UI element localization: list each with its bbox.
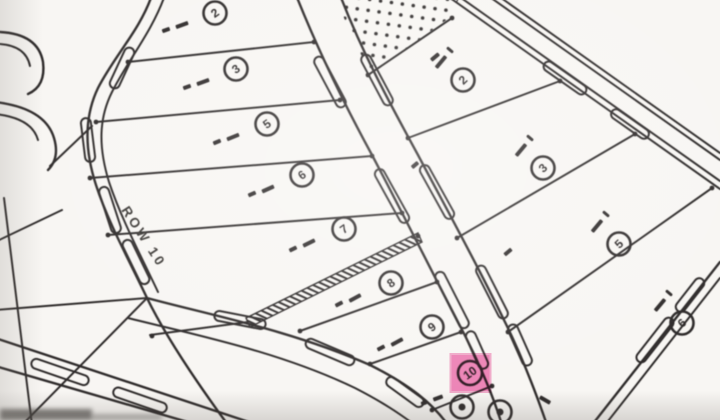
hatched-easement [246,233,422,327]
svg-text:6: 6 [675,315,690,330]
svg-text:2: 2 [208,5,222,20]
svg-text:3: 3 [229,61,243,76]
lot-marker-6[interactable]: 6 [291,164,314,187]
lot-marker-7[interactable]: 7 [333,218,356,241]
highlighted-lot-10[interactable] [451,354,491,392]
south-frontage-road [128,298,448,420]
svg-text:5: 5 [260,116,274,131]
lot-marker-2[interactable]: 2 [452,69,475,92]
lot-marker-3[interactable]: 3 [225,58,248,81]
road-junction-lines [0,126,147,420]
lot-marker-5[interactable]: 5 [608,233,631,256]
svg-text:2: 2 [456,72,471,87]
road-row-label: ROW 10 [118,203,169,270]
svg-text:9: 9 [425,319,439,334]
plat-map-drawing: ROW 10 2356789102356 [0,0,720,420]
central-road [296,0,547,420]
svg-text:8: 8 [384,275,398,290]
svg-text:3: 3 [536,160,551,175]
scan-artifact [0,409,92,420]
lot-marker-3[interactable]: 3 [532,157,555,180]
lot-marker-9[interactable]: 9 [421,316,444,339]
topleft-road-corners [0,32,56,170]
lot-marker-5[interactable]: 5 [256,113,279,136]
plat-map-canvas[interactable]: ROW 10 2356789102356 [0,0,720,420]
row-10-road [88,0,228,420]
svg-text:7: 7 [337,221,351,236]
svg-text:6: 6 [295,167,309,182]
scan-artifact [92,414,162,420]
left-block-lot-lines [90,42,492,410]
lot-marker-8[interactable]: 8 [380,272,403,295]
right-block-lot-lines [408,81,712,332]
lot-marker-2[interactable]: 2 [204,2,227,25]
bottom-right-road [592,262,720,420]
